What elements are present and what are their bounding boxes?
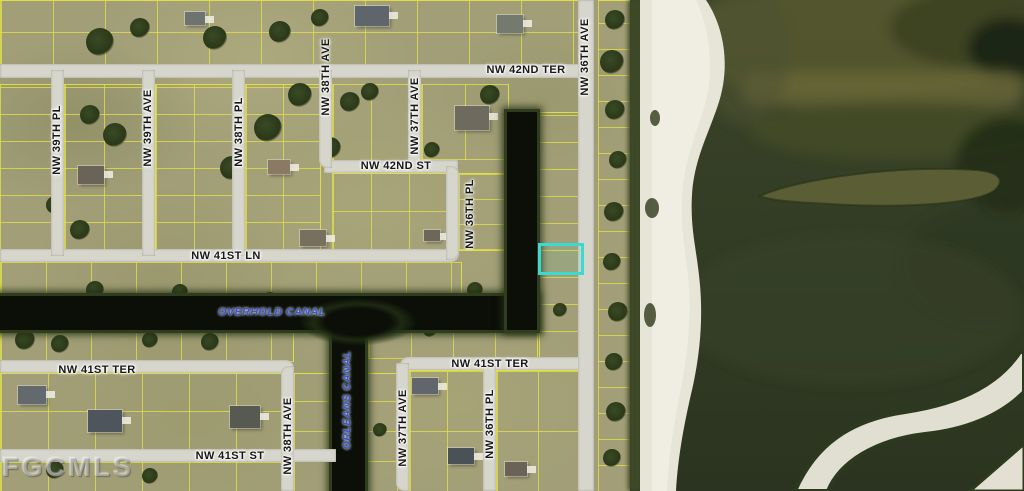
street-label: NW 42ND TER (487, 64, 566, 76)
street-label: NW 41ST TER (58, 364, 135, 376)
street-label: NW 41ST ST (196, 450, 265, 462)
canal-label: ORLEANS CANAL (341, 351, 353, 450)
label-layer: NW 42ND TERNW 42ND STNW 41ST LNNW 41ST T… (0, 0, 1024, 491)
street-label: NW 39TH PL (51, 105, 63, 174)
street-label: NW 37TH AVE (409, 77, 421, 154)
canal-label: OVERHOLD CANAL (218, 306, 326, 318)
aerial-map-image: NW 42ND TERNW 42ND STNW 41ST LNNW 41ST T… (0, 0, 1024, 491)
street-label: NW 39TH AVE (142, 89, 154, 166)
street-label: NW 36TH PL (464, 179, 476, 248)
street-label: NW 36TH AVE (579, 18, 591, 95)
street-label: NW 41ST LN (191, 250, 260, 262)
mls-watermark: FGCMLS (2, 452, 134, 483)
street-label: NW 36TH PL (484, 389, 496, 458)
street-label: NW 38TH AVE (320, 38, 332, 115)
street-label: NW 41ST TER (451, 358, 528, 370)
highlighted-parcel (538, 243, 584, 275)
street-label: NW 38TH AVE (282, 397, 294, 474)
street-label: NW 42ND ST (361, 160, 432, 172)
street-label: NW 38TH PL (233, 97, 245, 166)
street-label: NW 37TH AVE (397, 389, 409, 466)
